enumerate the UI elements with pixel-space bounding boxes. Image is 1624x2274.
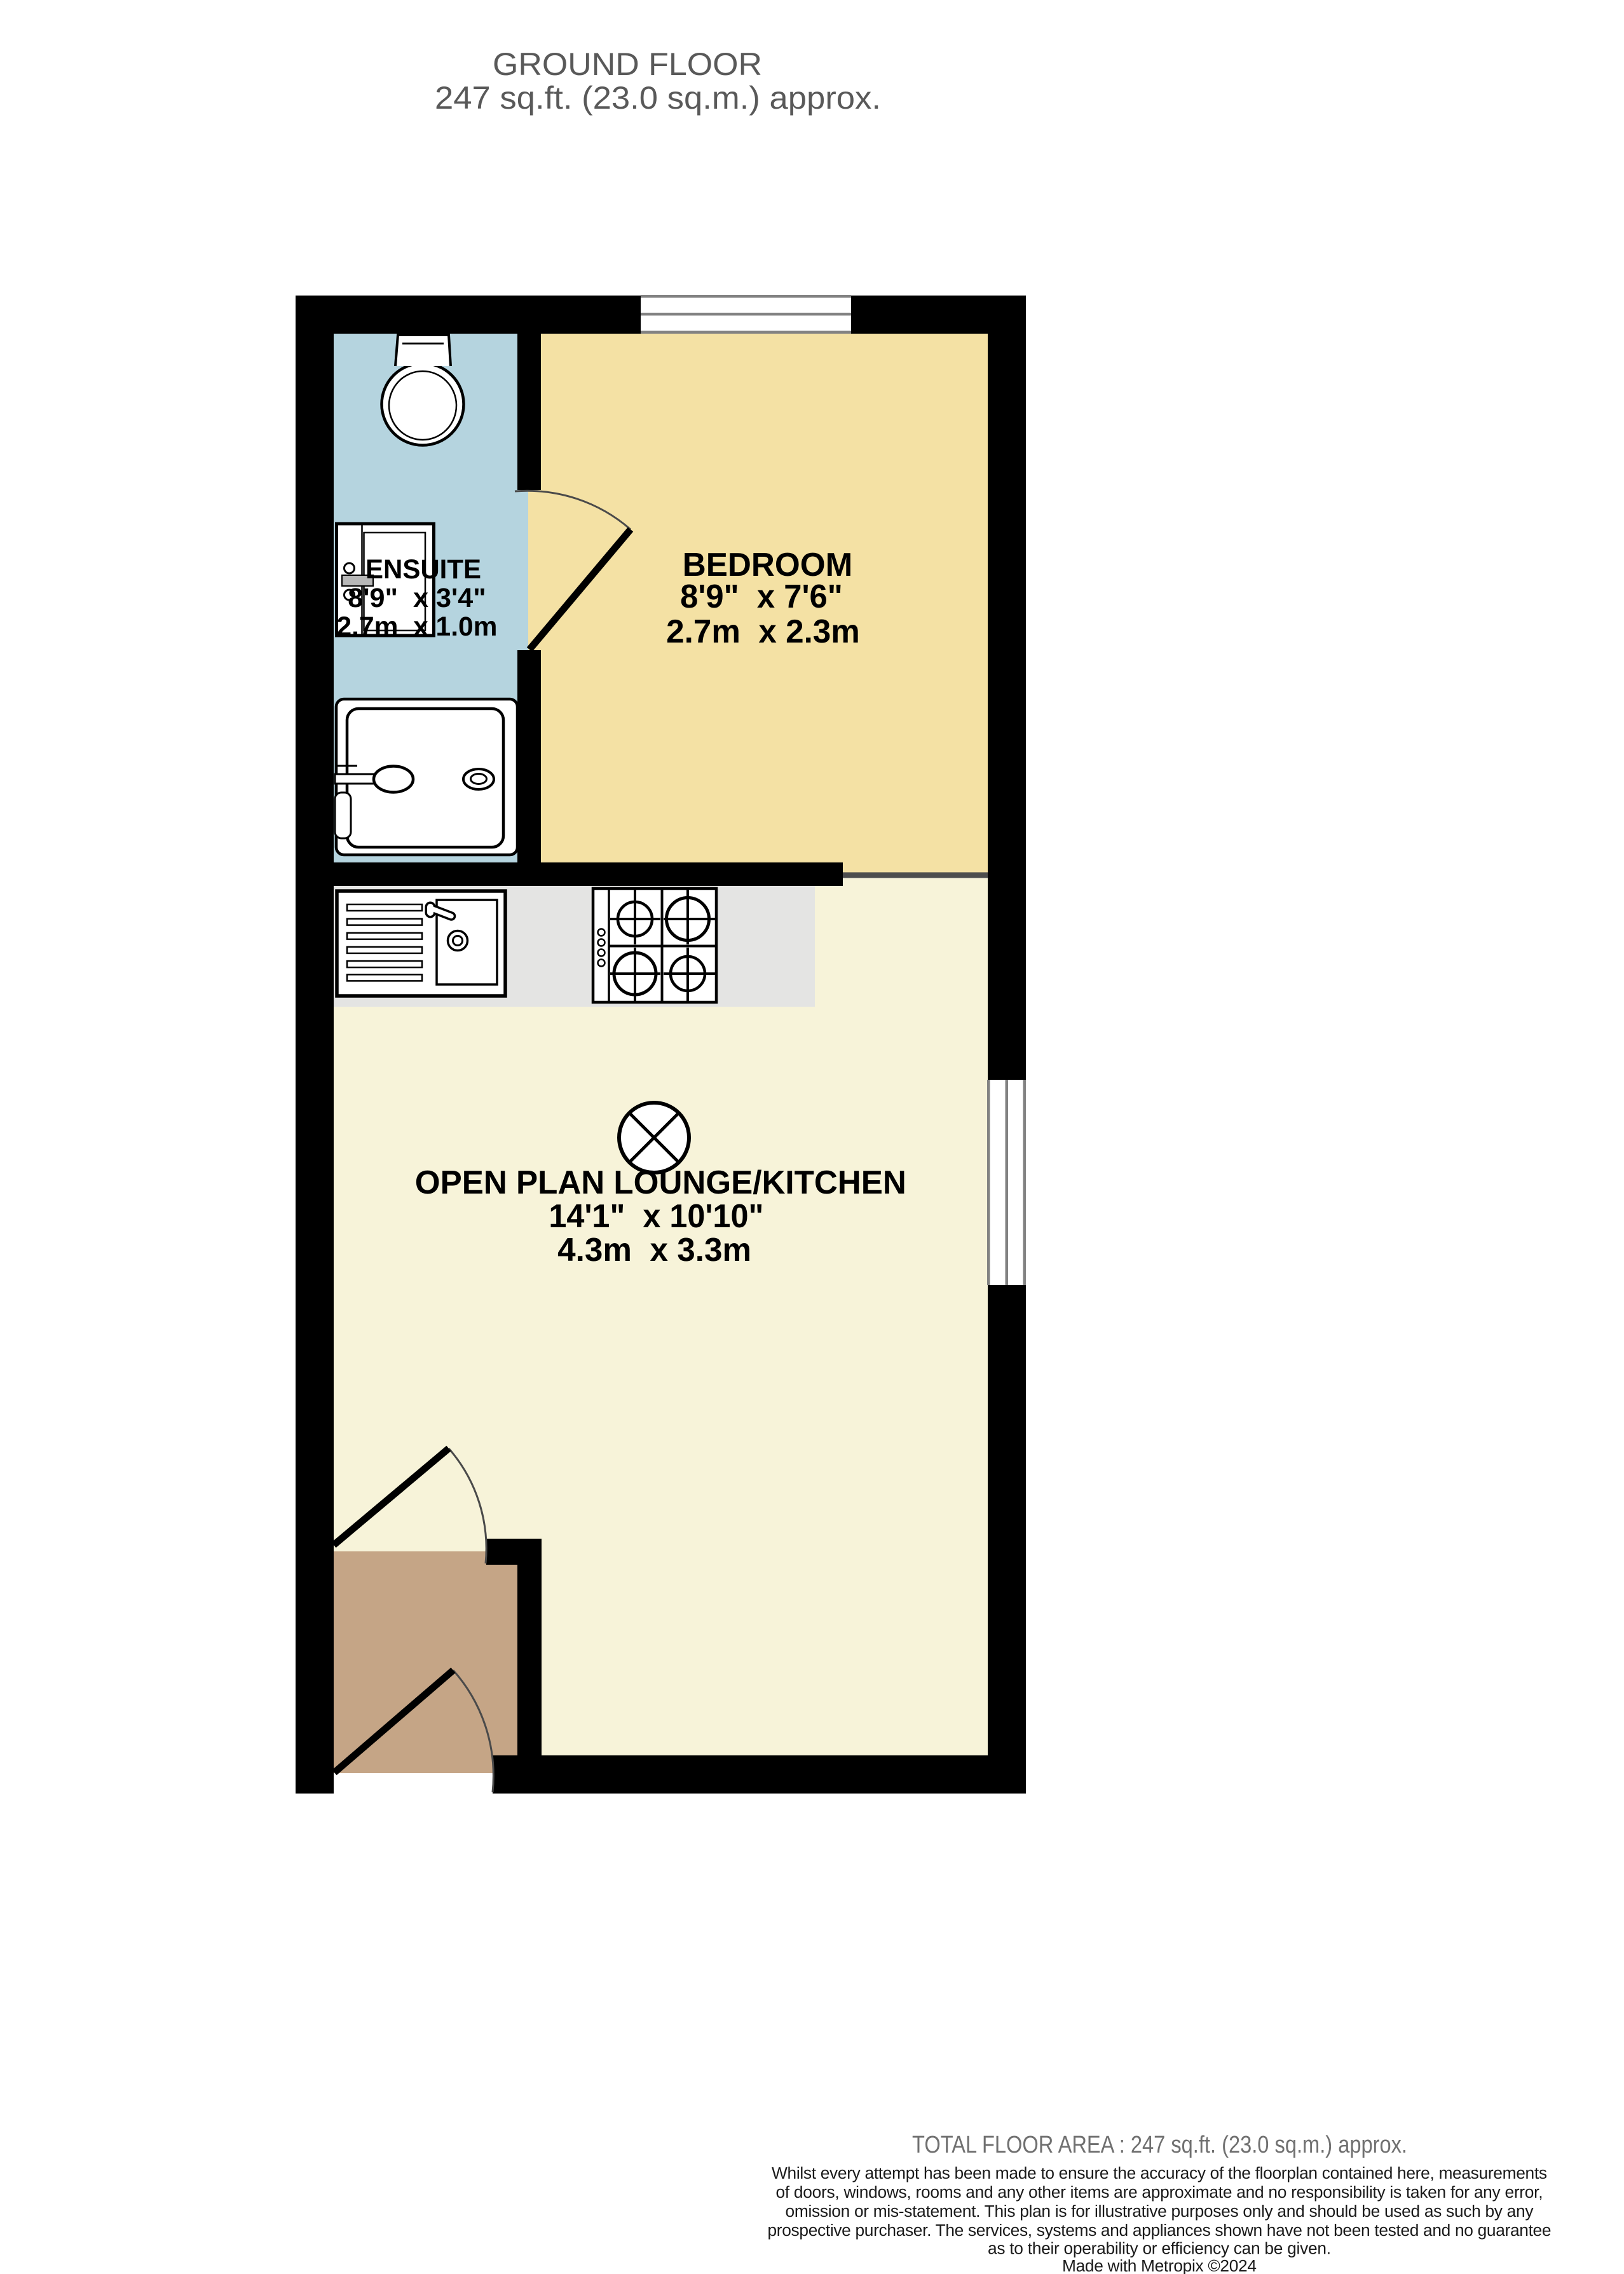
svg-text:8'9" x 3'4": 8'9" x 3'4"	[348, 583, 486, 613]
svg-text:prospective purchaser. The ser: prospective purchaser. The services, sys…	[768, 2221, 1552, 2240]
svg-text:2.7m x 1.0m: 2.7m x 1.0m	[337, 611, 498, 642]
svg-text:14'1" x 10'10": 14'1" x 10'10"	[549, 1198, 763, 1235]
svg-text:247 sq.ft. (23.0 sq.m.) approx: 247 sq.ft. (23.0 sq.m.) approx.	[435, 79, 881, 116]
svg-text:GROUND FLOOR: GROUND FLOOR	[493, 46, 762, 82]
svg-text:ENSUITE: ENSUITE	[365, 554, 481, 585]
svg-text:TOTAL FLOOR AREA : 247 sq.ft.: TOTAL FLOOR AREA : 247 sq.ft. (23.0 sq.m…	[912, 2132, 1407, 2158]
svg-text:Made with Metropix ©2024: Made with Metropix ©2024	[1062, 2256, 1257, 2274]
svg-text:as to their operability or eff: as to their operability or efficiency ca…	[988, 2239, 1331, 2258]
svg-text:omission or mis-statement. Thi: omission or mis-statement. This plan is …	[786, 2202, 1534, 2221]
svg-text:8'9" x 7'6": 8'9" x 7'6"	[680, 578, 843, 615]
svg-text:Whilst every attempt has been: Whilst every attempt has been made to en…	[772, 2163, 1547, 2182]
svg-text:OPEN PLAN LOUNGE/KITCHEN: OPEN PLAN LOUNGE/KITCHEN	[415, 1164, 906, 1201]
svg-text:4.3m x 3.3m: 4.3m x 3.3m	[557, 1232, 751, 1269]
svg-text:of doors, windows, rooms and a: of doors, windows, rooms and any other i…	[776, 2182, 1543, 2202]
svg-text:2.7m x 2.3m: 2.7m x 2.3m	[666, 613, 860, 650]
